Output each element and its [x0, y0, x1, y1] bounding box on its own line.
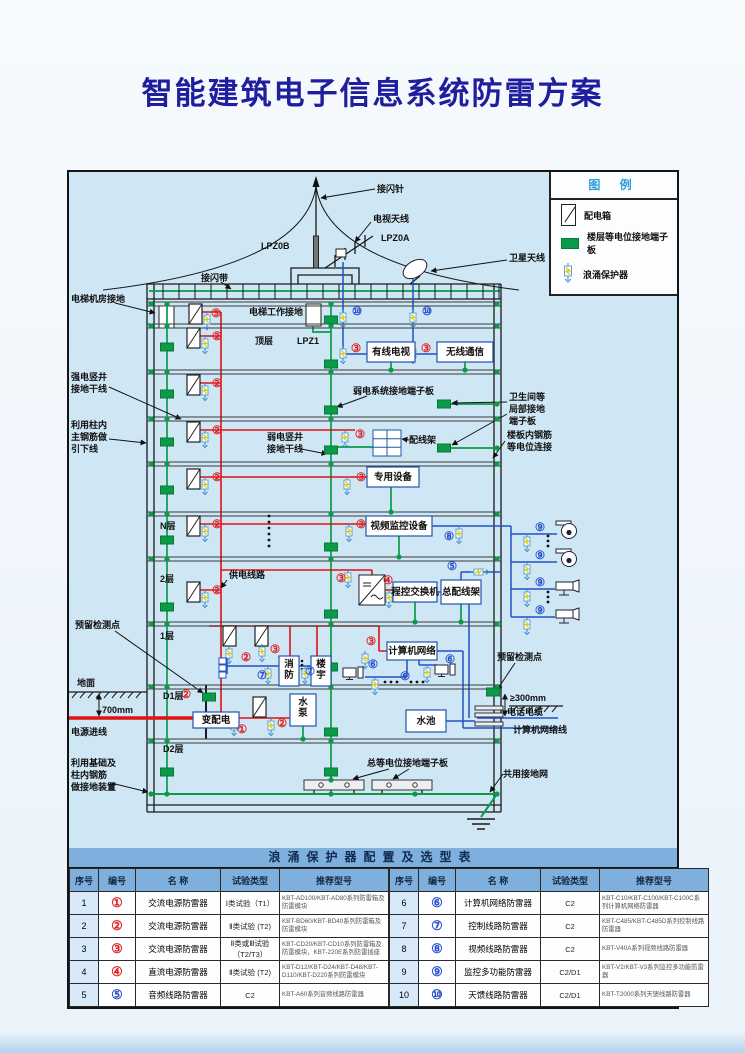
diagram-label: LPZ0A — [381, 233, 410, 243]
equipotential-node — [328, 777, 333, 782]
legend-item-label: 楼层等电位接地端子板 — [587, 230, 671, 256]
table-cell: 视频线路防雷器 — [456, 938, 541, 961]
table-header: 序号 — [390, 869, 419, 892]
table-cell: 音频线路防雷器 — [136, 984, 221, 1007]
table-cell: 交流电源防雷器 — [136, 892, 221, 915]
equipotential-node — [494, 416, 499, 421]
ground-hatch — [104, 692, 109, 698]
lightning-rod-base — [314, 236, 319, 268]
diagram-label: 电话电缆 — [507, 706, 543, 717]
surge-protector-icon — [524, 617, 530, 635]
diagram-element — [358, 667, 363, 678]
diagram-label: 引下线 — [71, 443, 98, 454]
circled-number-marker: ③ — [355, 428, 366, 441]
equipotential-node — [328, 791, 333, 796]
circled-number-marker: ④ — [383, 574, 394, 587]
equipment-box-label: 楼宇 — [316, 658, 326, 681]
page: 智能建筑电子信息系统防雷方案 — [0, 0, 745, 1053]
equipment-box: 总配线架 — [441, 580, 481, 604]
diagram-label: D1层 — [163, 691, 184, 701]
bottom-decorative-band — [0, 1031, 745, 1053]
diagram-element — [573, 608, 579, 620]
surge-protector-icon — [259, 644, 265, 662]
ellipsis-dot — [268, 521, 271, 524]
main-equipotential-terminal-bars — [304, 780, 432, 790]
equipotential-node — [148, 791, 153, 796]
dome-camera-icon — [556, 521, 577, 539]
ellipsis-dot — [416, 681, 419, 684]
diagram-element — [525, 574, 530, 580]
table-row: 5⑤音频线路防雷器C2KBT-A60系列音频线路防雷器 — [70, 984, 389, 1007]
diagram-label: N层 — [160, 521, 176, 531]
computer-icon — [343, 667, 363, 680]
table-header: 试验类型 — [541, 869, 600, 892]
floor-terminal-board — [203, 693, 216, 701]
table-cell: KBT-C485/KBT-C485D系列控制线路防雷器 — [600, 915, 709, 938]
floor-terminal-board — [438, 400, 451, 408]
rectifier-icon — [359, 575, 385, 605]
equipotential-node — [328, 621, 333, 626]
table-header: 编号 — [99, 869, 136, 892]
floor-terminal-board — [438, 444, 451, 452]
legend-item-spd: 浪涌保护器 — [551, 256, 677, 288]
equipotential-node — [328, 556, 333, 561]
surge-protector-icon — [202, 383, 208, 401]
circled-number-marker: ⑨ — [535, 576, 546, 589]
ground-hatch — [544, 706, 549, 712]
floor-terminal-board — [325, 316, 338, 324]
table-cell: Ⅰ类试验（T1） — [221, 892, 280, 915]
distribution-box-icon — [187, 328, 200, 348]
equipotential-node — [494, 738, 499, 743]
diagram-element — [269, 730, 274, 736]
surge-protector-icon — [424, 665, 430, 683]
ground-hatch — [552, 706, 557, 712]
equipment-box-label: 程控交换机 — [391, 586, 439, 598]
equipment-box: 消防 — [279, 656, 299, 686]
diagram-element — [345, 489, 350, 495]
diagram-element — [450, 664, 455, 675]
table-cell: 天馈线路防雷器 — [456, 984, 541, 1007]
floor-terminal-board — [487, 688, 500, 696]
surge-protector-icon — [202, 336, 208, 354]
table-cell: ⑨ — [419, 961, 456, 984]
surge-protector-icon — [342, 430, 348, 448]
equipotential-node — [164, 461, 169, 466]
sensor-icon — [219, 658, 226, 664]
diagram-label: 计算机网络线 — [513, 724, 567, 735]
equipotential-node — [164, 791, 169, 796]
diagram-element — [203, 489, 208, 495]
floor-slab — [147, 739, 501, 743]
floor-terminal-board — [325, 728, 338, 736]
table-row: 4④直流电源防雷器Ⅱ类试验 (T2)KBT-D12/KBT-D24/KBT-D4… — [70, 961, 389, 984]
surge-protector-icon — [226, 646, 232, 664]
legend-item-distribution-box: 配电箱 — [551, 200, 677, 226]
equipment-box-label: 无线通信 — [445, 346, 485, 358]
table-row: 2②交流电源防雷器Ⅱ类试验 (T2)KBT-BD60/KBT-BD40系列防雷箱… — [70, 915, 389, 938]
table-cell: 2 — [70, 915, 99, 938]
equipotential-node — [164, 621, 169, 626]
ellipsis-dot — [547, 591, 550, 594]
equipotential-node — [412, 619, 417, 624]
bullet-camera-icon — [556, 580, 579, 595]
equipotential-node — [328, 461, 333, 466]
diagram-label: 700mm — [102, 705, 133, 715]
equipotential-node — [494, 511, 499, 516]
equipotential-node — [328, 416, 333, 421]
diagram-element — [203, 442, 208, 448]
circled-number-marker: ② — [277, 717, 288, 730]
surge-protector-icon — [268, 718, 274, 736]
diagram-element — [573, 580, 579, 592]
equipment-box: 专用设备 — [367, 467, 419, 487]
ground-hatch — [80, 692, 85, 698]
diagram-label: 2层 — [160, 574, 174, 584]
diagram-element — [232, 730, 237, 736]
diagram-label: 电梯工作接地 — [249, 306, 303, 317]
circled-number-marker: ② — [241, 651, 252, 664]
diagram-element — [525, 629, 530, 635]
floor-terminal-board — [161, 486, 174, 494]
diagram-label: 接地干线 — [267, 443, 303, 454]
diagram-element — [525, 601, 530, 607]
circled-number-marker: ③ — [356, 518, 367, 531]
equipotential-node — [328, 738, 333, 743]
circled-number-marker: ② — [212, 518, 223, 531]
distribution-box-icon — [189, 304, 202, 324]
diagram-label: 预留检测点 — [75, 619, 120, 630]
surge-protector-icon — [524, 589, 530, 607]
equipment-box-label: 专用设备 — [374, 471, 413, 483]
surge-protector-icon — [410, 310, 416, 328]
spd-table-right: 序号编号名 称试验类型推荐型号6⑥计算机网络防雷器C2KBT-C10/KBT-C… — [389, 868, 709, 1007]
circled-number-marker: ⑨ — [535, 604, 546, 617]
circled-number-marker: ⑨ — [535, 549, 546, 562]
diagram-element — [203, 348, 208, 354]
floor-terminal-board — [325, 446, 338, 454]
ground-hatch — [112, 692, 117, 698]
diagram-label: 做接地装置 — [70, 781, 116, 792]
table-cell: KBT-C10/KBT-C100/KBT-C100C系列计算机网络防雷器 — [600, 892, 709, 915]
surge-protector-icon — [346, 524, 352, 542]
equipotential-node — [328, 301, 333, 306]
circled-number-marker: ② — [212, 424, 223, 437]
equipment-box-label: 视频监控设备 — [370, 520, 428, 532]
circled-number-marker: ⑨ — [535, 521, 546, 534]
circled-number-marker: ⑦ — [305, 665, 316, 678]
equipotential-node — [148, 301, 153, 306]
surge-protector-icon — [524, 562, 530, 580]
equipment-box-label: 变配电 — [202, 714, 231, 726]
ground-hatch — [72, 692, 77, 698]
diagram-element — [566, 530, 571, 535]
diagram-element — [387, 602, 392, 608]
ellipsis-dot — [547, 596, 550, 599]
ellipsis-dot — [547, 540, 550, 543]
equipotential-node — [328, 511, 333, 516]
equipotential-node — [164, 369, 169, 374]
floor-slab — [147, 462, 501, 466]
diagram-element — [347, 536, 352, 542]
table-cell: 直流电源防雷器 — [136, 961, 221, 984]
table-title: 浪涌保护器配置及选型表 — [69, 848, 677, 868]
diagram-label: LPZ1 — [297, 336, 319, 346]
distribution-box-icon — [253, 697, 266, 717]
table-cell: KBT-V2/KBT-V3系列监控多功能防雷器 — [600, 961, 709, 984]
table-cell: ① — [99, 892, 136, 915]
diagram-label: 预留检测点 — [497, 651, 542, 662]
equipotential-node — [148, 323, 153, 328]
table-cell: KBT-V40A系列视频线路防雷器 — [600, 938, 709, 961]
table-cell: 计算机网络防雷器 — [456, 892, 541, 915]
table-cell: 10 — [390, 984, 419, 1007]
circled-number-marker: ⑤ — [447, 560, 458, 573]
table-cell: 交流电源防雷器 — [136, 938, 221, 961]
distribution-box-icon — [223, 626, 236, 646]
spd-selection-table: 浪涌保护器配置及选型表 序号编号名 称试验类型推荐型号1①交流电源防雷器Ⅰ类试验… — [67, 848, 679, 1009]
table-header: 试验类型 — [221, 869, 280, 892]
diagram-label: 局部接地 — [509, 403, 545, 414]
diagram-label: 卫生间等 — [509, 391, 545, 402]
table-cell: Ⅱ类或Ⅲ试验（T2/T3） — [221, 938, 280, 961]
diagram-label: 电视天线 — [373, 213, 409, 224]
equipotential-node — [328, 369, 333, 374]
diagram-label: 等电位连接 — [506, 441, 552, 452]
table-cell: C2 — [221, 984, 280, 1007]
table-header: 名 称 — [456, 869, 541, 892]
equipment-box: 变配电 — [193, 712, 239, 728]
equipotential-node — [164, 301, 169, 306]
ground-hatch — [120, 692, 125, 698]
diagram-label: 供电线路 — [228, 569, 266, 580]
ground-hatch — [128, 692, 133, 698]
page-title: 智能建筑电子信息系统防雷方案 — [0, 68, 745, 113]
equipment-box: 计算机网络 — [387, 642, 437, 660]
diagram-label: 总等电位接地端子板 — [367, 757, 449, 768]
ground-hatch — [88, 692, 93, 698]
table-cell: KBT-A60系列音频线路防雷器 — [280, 984, 389, 1007]
distribution-box-icon — [187, 422, 200, 442]
equipment-box-label: 水池 — [416, 715, 436, 727]
circled-number-marker: ② — [212, 377, 223, 390]
ellipsis-dot — [547, 545, 550, 548]
distribution-box-icon — [561, 204, 576, 226]
equipotential-node — [494, 621, 499, 626]
table-header: 序号 — [70, 869, 99, 892]
table-cell: Ⅱ类试验 (T2) — [221, 915, 280, 938]
equipment-box-label: 有线电视 — [372, 346, 411, 358]
floor-slab — [147, 417, 501, 421]
surge-protector-icon — [202, 430, 208, 448]
equipotential-node — [458, 619, 463, 624]
equipotential-node — [148, 511, 153, 516]
diagram-label: 共用接地网 — [503, 768, 548, 779]
circled-number-marker: ③ — [211, 307, 222, 320]
equipotential-node — [494, 323, 499, 328]
circled-number-marker: ③ — [421, 342, 432, 355]
surge-protector-icon — [456, 526, 462, 544]
diagram-element — [205, 324, 210, 330]
table-cell: 1 — [70, 892, 99, 915]
circled-number-marker: ③ — [366, 635, 377, 648]
equipotential-node — [396, 554, 401, 559]
table-cell: 8 — [390, 938, 419, 961]
surge-protector-icon — [202, 477, 208, 495]
equipotential-node — [148, 621, 153, 626]
table-cell: 7 — [390, 915, 419, 938]
spd-table-left: 序号编号名 称试验类型推荐型号1①交流电源防雷器Ⅰ类试验（T1）KBT-AD10… — [69, 868, 389, 1007]
diagram-label: 楼板内钢筋 — [507, 429, 552, 440]
diagram-element — [341, 358, 346, 364]
diagram-label: 利用基础及 — [70, 757, 117, 768]
computer-icon — [435, 664, 455, 677]
table-cell: C2 — [541, 892, 600, 915]
distribution-box-icon — [187, 469, 200, 489]
antenna-amp-box — [336, 249, 346, 257]
table-header: 推荐型号 — [280, 869, 389, 892]
table-cell: ⑩ — [419, 984, 456, 1007]
cable-entry-stack — [475, 706, 503, 726]
diagram-label: 配线架 — [409, 434, 436, 445]
table-cell: C2/D1 — [541, 984, 600, 1007]
equipotential-node — [148, 369, 153, 374]
table-cell: 3 — [70, 938, 99, 961]
table-cell: ⑧ — [419, 938, 456, 961]
table-cell: ② — [99, 915, 136, 938]
diagram-element — [203, 602, 208, 608]
table-row: 3③交流电源防雷器Ⅱ类或Ⅲ试验（T2/T3）KBT-CD20/KBT-CD10系… — [70, 938, 389, 961]
surge-protector-icon — [202, 524, 208, 542]
surge-protector-icon — [372, 677, 378, 695]
surge-protector-icon — [340, 346, 346, 364]
table-cell: C2 — [541, 938, 600, 961]
table-cell: ③ — [99, 938, 136, 961]
floor-terminal-icon — [561, 238, 579, 249]
diagram-label: 卫星天线 — [509, 252, 545, 263]
circled-number-marker: ⑥ — [400, 670, 411, 683]
floor-terminal-board — [325, 610, 338, 618]
surge-protector-icon — [202, 590, 208, 608]
floor-terminal-board — [325, 360, 338, 368]
ellipsis-dot — [268, 545, 271, 548]
ellipsis-dot — [268, 515, 271, 518]
diagram-label: 顶层 — [255, 336, 273, 346]
ellipsis-dot — [547, 535, 550, 538]
table-cell: ⑥ — [419, 892, 456, 915]
floor-terminal-board — [325, 543, 338, 551]
ground-hatch — [136, 692, 141, 698]
equipment-box-label: 消防 — [284, 658, 294, 681]
table-row: 8⑧视频线路防雷器C2KBT-V40A系列视频线路防雷器 — [390, 938, 709, 961]
floor-terminal-board — [161, 603, 174, 611]
equipotential-node — [164, 416, 169, 421]
diagram-label: ≥300mm — [510, 693, 546, 703]
diagram-element — [457, 538, 462, 544]
ellipsis-dot — [410, 681, 413, 684]
equipotential-node — [164, 511, 169, 516]
equipment-box: 水池 — [406, 710, 446, 732]
equipotential-node — [494, 301, 499, 306]
ellipsis-dot — [384, 681, 387, 684]
distribution-box-icon — [187, 516, 200, 536]
table-cell: KBT-T2000系列天馈线路防雷器 — [600, 984, 709, 1007]
ellipsis-dot — [396, 681, 399, 684]
floor-slab — [147, 370, 501, 374]
equipotential-node — [494, 556, 499, 561]
legend-item-label: 浪涌保护器 — [583, 268, 628, 281]
legend-item-label: 配电箱 — [584, 209, 611, 222]
equipotential-node — [494, 461, 499, 466]
diagram-label: 弱电竖井 — [267, 431, 303, 442]
wiring-frame-icon — [373, 430, 401, 456]
distribution-box-icon — [187, 582, 200, 602]
circled-number-marker: ③ — [336, 572, 347, 585]
equipotential-node — [462, 367, 467, 372]
equipment-box-label: 计算机网络 — [388, 645, 436, 657]
diagram-element — [566, 558, 571, 563]
equipotential-node — [148, 738, 153, 743]
surge-protector-icon — [344, 477, 350, 495]
table-cell: KBT-BD60/KBT-BD40系列防雷箱及防雷模块 — [280, 915, 389, 938]
equipotential-node — [148, 556, 153, 561]
table-cell: 4 — [70, 961, 99, 984]
diagram-element — [425, 677, 430, 683]
ellipsis-dot — [268, 539, 271, 542]
ellipsis-dot — [422, 681, 425, 684]
equipment-box-label: 总配线架 — [442, 586, 481, 598]
equipotential-node — [494, 401, 499, 406]
diagram-label: 强电竖井 — [71, 371, 107, 382]
equipotential-node — [148, 684, 153, 689]
table-cell: ⑤ — [99, 984, 136, 1007]
table-cell: 9 — [390, 961, 419, 984]
equipotential-node — [494, 369, 499, 374]
diagram-label: 柱内钢筋 — [71, 769, 107, 780]
surge-protector-icon — [340, 310, 346, 328]
distribution-box-icon — [255, 626, 268, 646]
table-row: 10⑩天馈线路防雷器C2/D1KBT-T2000系列天馈线路防雷器 — [390, 984, 709, 1007]
earth-symbol-icon — [467, 819, 495, 829]
floor-terminal-board — [161, 768, 174, 776]
bullet-camera-icon — [556, 608, 579, 623]
table-cell: Ⅱ类试验 (T2) — [221, 961, 280, 984]
ellipsis-dot — [268, 527, 271, 530]
diagram-element — [203, 536, 208, 542]
diagram-label: 利用柱内 — [70, 419, 107, 430]
table-cell: 控制线路防雷器 — [456, 915, 541, 938]
diagram-label: 弱电系统接地端子板 — [353, 385, 435, 396]
equipotential-node — [164, 738, 169, 743]
floor-terminal-board — [325, 406, 338, 414]
equipotential-node — [148, 461, 153, 466]
diagram-label: LPZ0B — [261, 241, 290, 251]
table-header: 名 称 — [136, 869, 221, 892]
circled-number-marker: ⑥ — [368, 658, 379, 671]
floor-slab — [147, 324, 501, 328]
floor-terminal-board — [161, 390, 174, 398]
table-cell: C2 — [541, 915, 600, 938]
diagram-element — [525, 546, 530, 552]
ellipsis-dot — [268, 533, 271, 536]
diagram-element — [373, 689, 378, 695]
lightning-protection-diagram-panel: 有线电视无线通信专用设备视频监控设备程控交换机总配线架计算机网络水池变配电消防楼… — [67, 170, 679, 852]
diagram-label: D2层 — [163, 744, 184, 754]
table-cell: ④ — [99, 961, 136, 984]
circled-number-marker: ③ — [270, 643, 281, 656]
equipotential-node — [300, 736, 305, 741]
floor-terminal-board — [161, 536, 174, 544]
